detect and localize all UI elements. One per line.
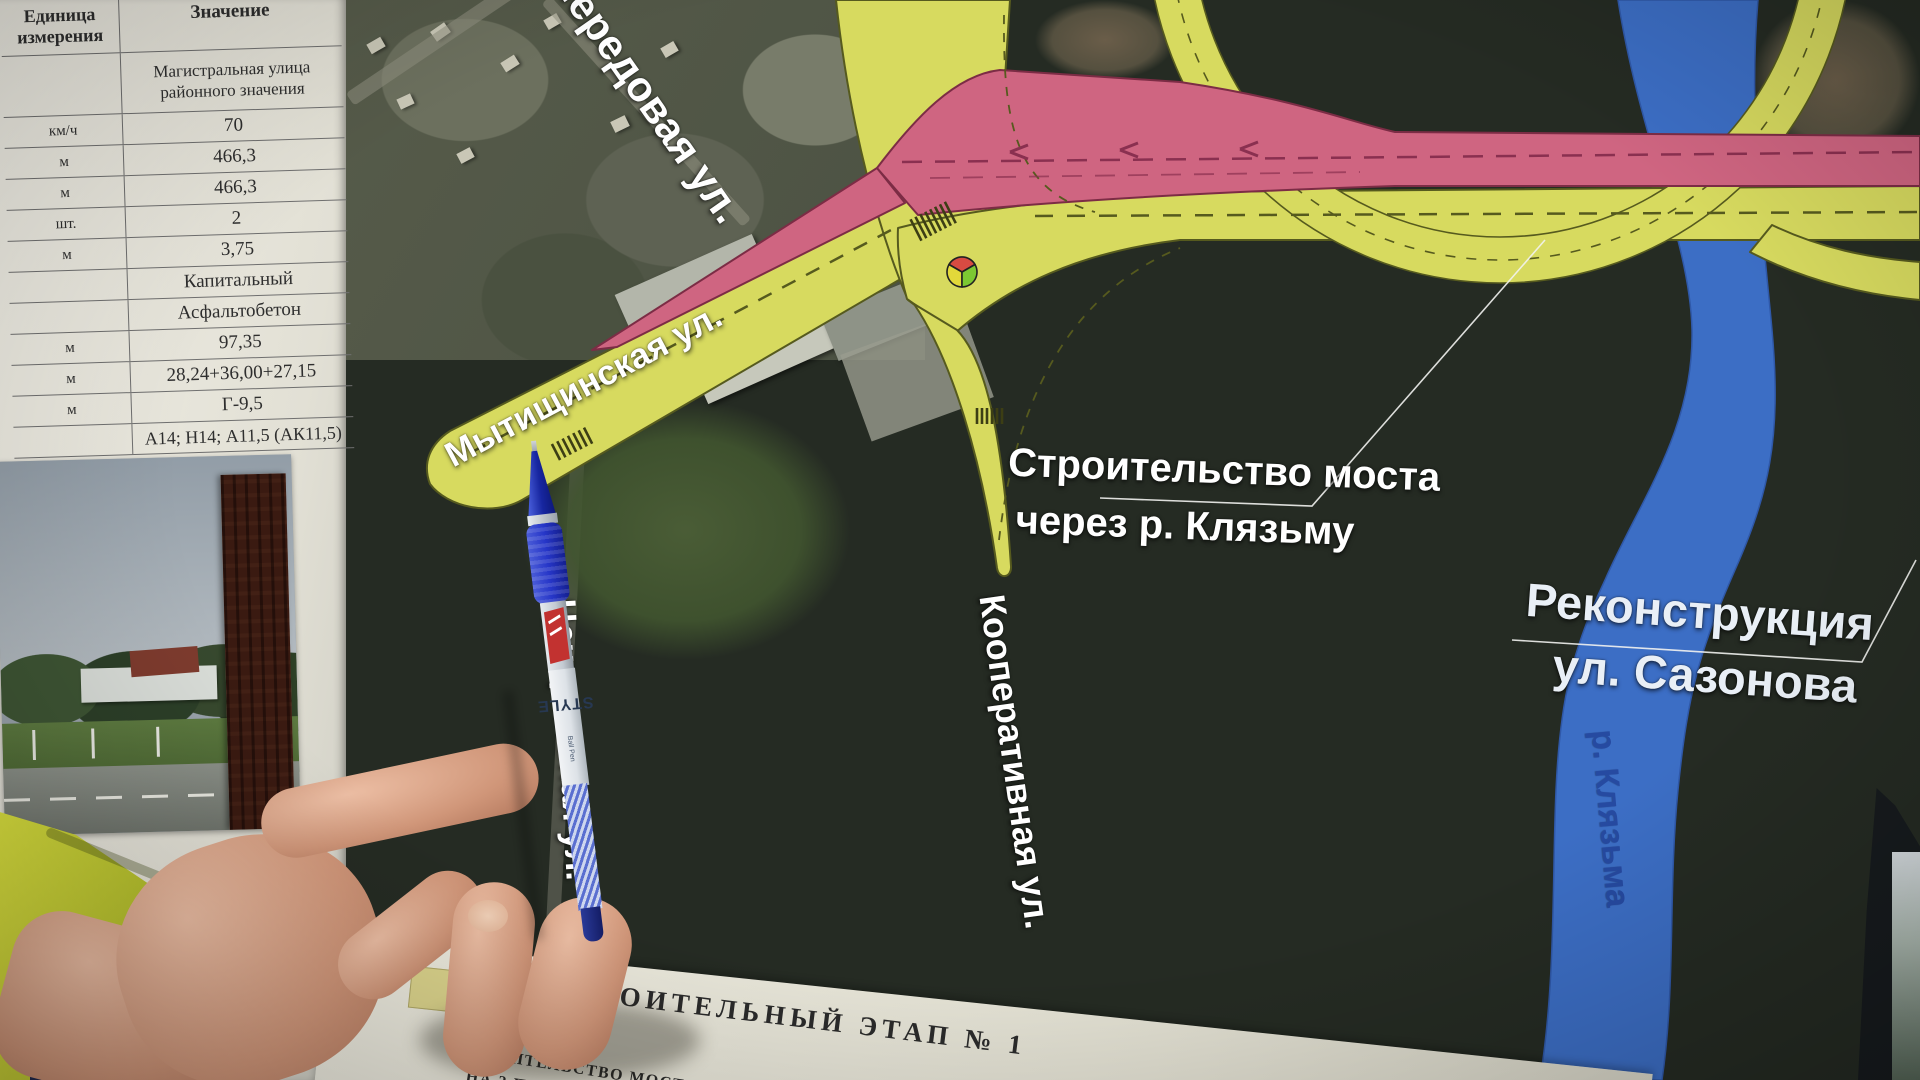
pen-patterned-barrel bbox=[563, 783, 602, 911]
spec-table: Единица измерения Значение Магистральная… bbox=[0, 0, 354, 459]
pen-rubber-grip bbox=[525, 521, 570, 605]
table-subheader-row: Магистральная улица районного значения bbox=[2, 46, 344, 118]
pen-label: STYLE Ball Pen bbox=[548, 668, 589, 788]
unit-column-header: Единица измерения bbox=[0, 0, 121, 56]
pen-subtext: Ball Pen bbox=[566, 735, 576, 762]
street-class-subheader: Магистральная улица районного значения bbox=[121, 46, 344, 113]
pen-end-cap bbox=[580, 906, 604, 942]
pen-cone bbox=[520, 449, 556, 518]
traffic-light-icon bbox=[947, 257, 977, 287]
photo-of-construction-plan-poster: Передовая ул. Мытищинская ул. Центральна… bbox=[0, 0, 1920, 1080]
project-rendering-photo bbox=[0, 454, 301, 836]
value-column-header: Значение bbox=[119, 0, 342, 52]
adjacent-poster-fragment bbox=[1892, 852, 1920, 1080]
rendering-red-roof-house bbox=[130, 646, 200, 677]
fingernail bbox=[468, 900, 508, 932]
rendering-brick-tower bbox=[221, 473, 295, 830]
pen-brand-text: STYLE bbox=[536, 692, 594, 715]
